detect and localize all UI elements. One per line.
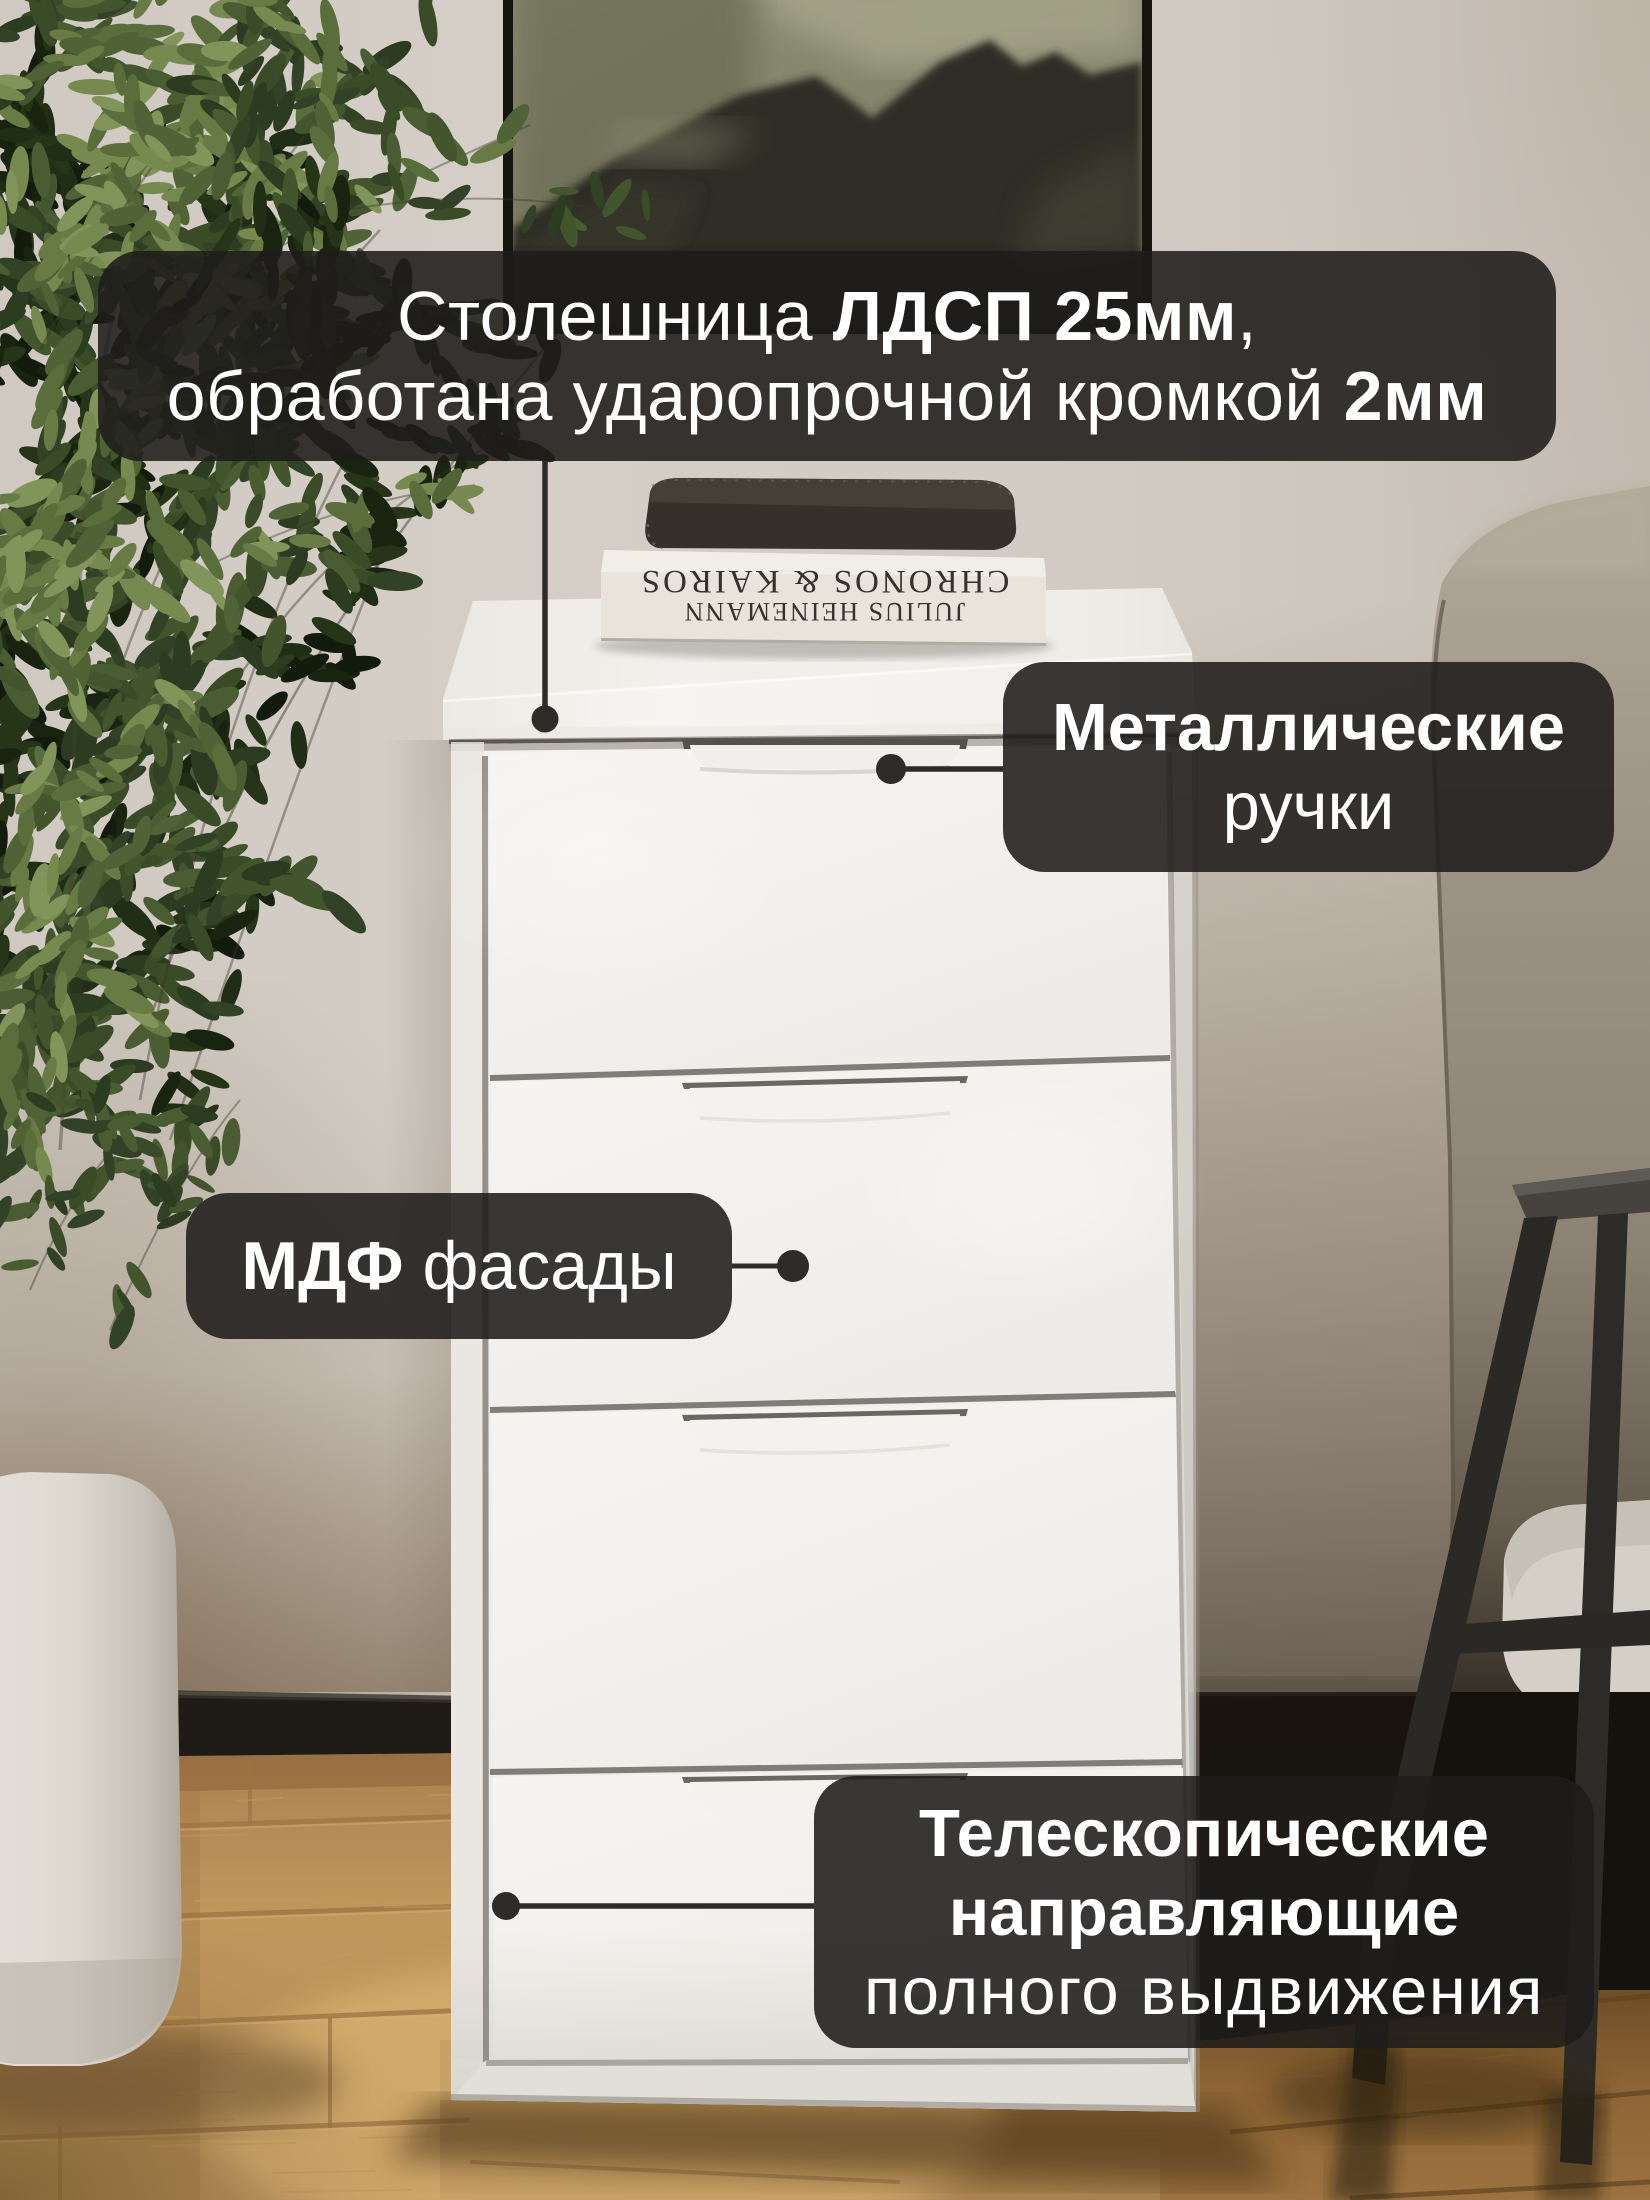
svg-text:JULIUS HEINEMANN: JULIUS HEINEMANN <box>683 597 966 626</box>
svg-text:CHRONOS & KAIROS: CHRONOS & KAIROS <box>639 563 1010 599</box>
